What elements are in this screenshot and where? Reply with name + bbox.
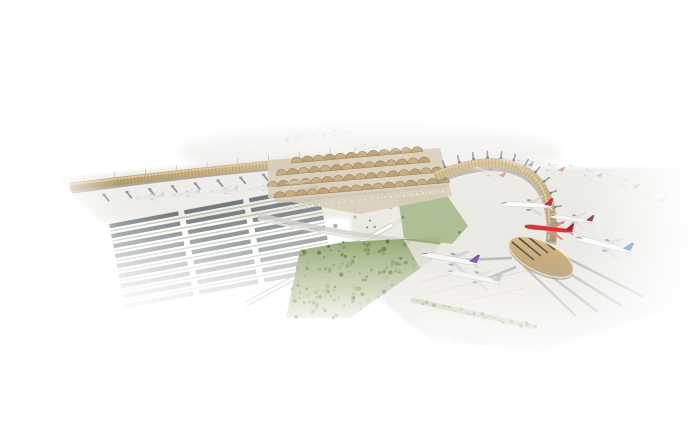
fade-right	[0, 0, 700, 438]
white-vignette	[0, 0, 700, 438]
airport-aerial-render	[0, 0, 700, 438]
airport-render-stage	[0, 0, 700, 438]
